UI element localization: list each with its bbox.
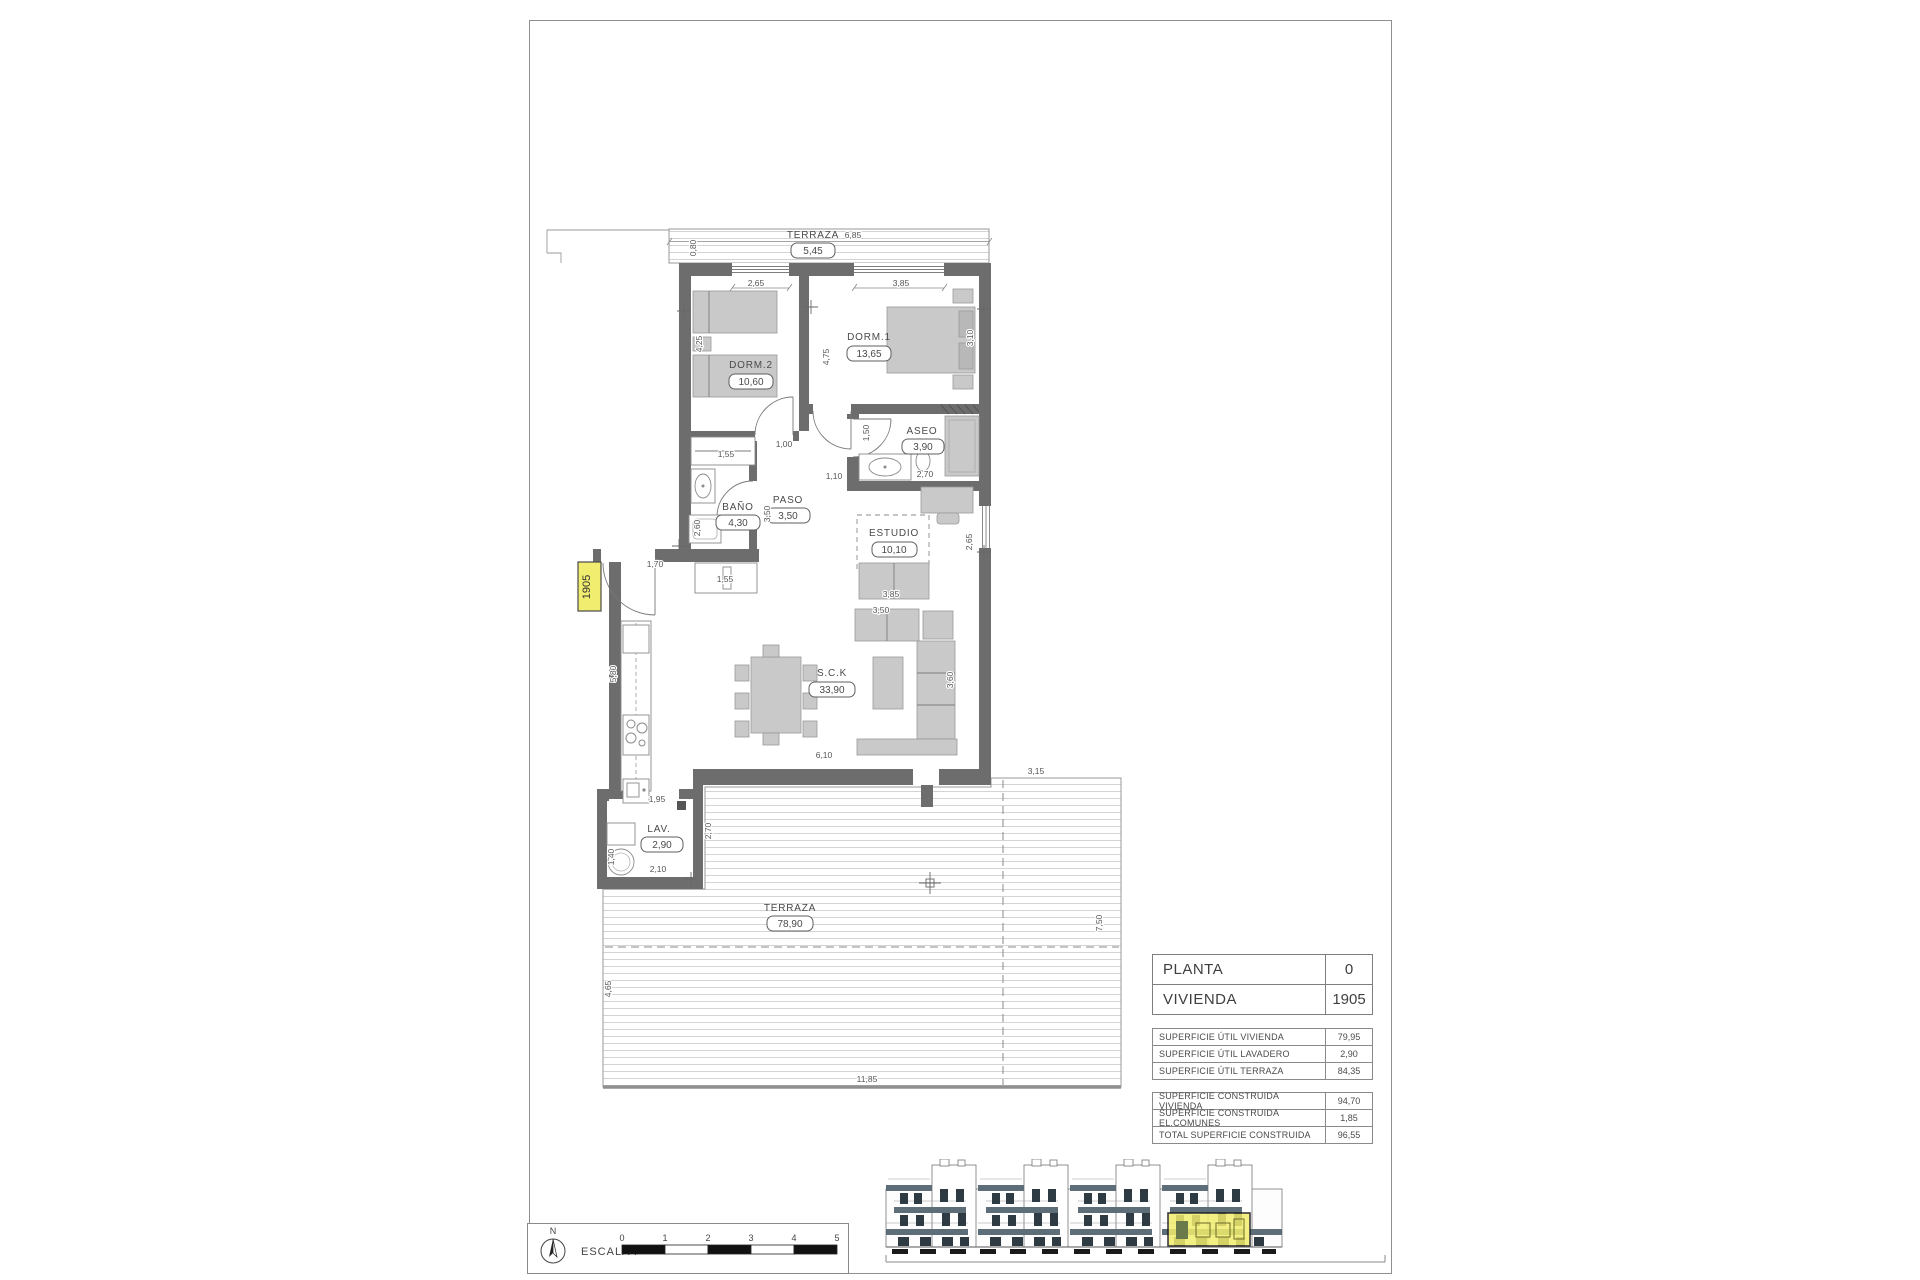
table-row: SUPERFICIE ÚTIL LAVADERO 2,90 <box>1153 1045 1372 1062</box>
area-value: 96,55 <box>1325 1127 1372 1143</box>
svg-text:1,10: 1,10 <box>826 471 843 481</box>
svg-text:DORM.2: DORM.2 <box>729 360 773 371</box>
area-value: 94,70 <box>1325 1093 1372 1109</box>
svg-text:4: 4 <box>791 1233 796 1243</box>
svg-text:4,65: 4,65 <box>603 980 613 997</box>
svg-text:0,80: 0,80 <box>688 239 698 256</box>
table-row: TOTAL SUPERFICIE CONSTRUIDA 96,55 <box>1153 1126 1372 1143</box>
area-label: TOTAL SUPERFICIE CONSTRUIDA <box>1153 1130 1325 1140</box>
info-value: 0 <box>1325 955 1372 984</box>
svg-text:2,70: 2,70 <box>917 469 934 479</box>
svg-text:1,70: 1,70 <box>647 559 664 569</box>
svg-text:6,10: 6,10 <box>816 750 833 760</box>
area-label: SUPERFICIE CONSTRUIDA EL.COMUNES <box>1153 1108 1325 1128</box>
svg-text:S.C.K: S.C.K <box>817 668 847 679</box>
svg-text:1,55: 1,55 <box>718 449 735 459</box>
scale-bar: N ESCALA : 0 1 2 3 4 5 <box>527 1223 849 1274</box>
kitchen-counter <box>621 621 651 803</box>
svg-text:TERRAZA: TERRAZA <box>787 230 839 241</box>
room-label-lav: LAV. 2,90 <box>641 824 683 852</box>
area-value: 1,85 <box>1325 1110 1372 1126</box>
svg-text:1,95: 1,95 <box>649 794 666 804</box>
svg-text:ESTUDIO: ESTUDIO <box>869 528 919 539</box>
room-label-paso: PASO 3,50 <box>767 495 810 523</box>
svg-text:ASEO: ASEO <box>907 426 938 437</box>
svg-text:5,80: 5,80 <box>608 665 618 682</box>
svg-text:2,10: 2,10 <box>650 864 667 874</box>
table-row: VIVIENDA 1905 <box>1153 984 1372 1014</box>
svg-text:2,65: 2,65 <box>748 278 765 288</box>
building-elevation <box>880 1159 1391 1280</box>
svg-text:4,25: 4,25 <box>694 335 704 352</box>
svg-text:3: 3 <box>748 1233 753 1243</box>
svg-text:2,60: 2,60 <box>692 519 702 536</box>
sink-icon <box>623 779 649 803</box>
table-row: SUPERFICIE CONSTRUIDA VIVIENDA 94,70 <box>1153 1093 1372 1109</box>
floor-plan: 1905 TERRAZA 5,45 DORM.2 10,60 DORM.1 13 <box>530 21 1391 1273</box>
table-row: SUPERFICIE CONSTRUIDA EL.COMUNES 1,85 <box>1153 1109 1372 1126</box>
svg-text:78,90: 78,90 <box>777 919 802 930</box>
table-row: SUPERFICIE ÚTIL TERRAZA 84,35 <box>1153 1062 1372 1079</box>
area-label: SUPERFICIE ÚTIL LAVADERO <box>1153 1049 1325 1059</box>
svg-text:10,60: 10,60 <box>738 377 763 388</box>
svg-text:1,55: 1,55 <box>717 574 734 584</box>
svg-text:3,15: 3,15 <box>1028 766 1045 776</box>
svg-text:5,45: 5,45 <box>803 246 823 257</box>
svg-text:N: N <box>550 1226 557 1236</box>
svg-text:3,50: 3,50 <box>778 511 798 522</box>
room-label-terraza-top: TERRAZA 5,45 <box>787 230 839 258</box>
svg-text:2,65: 2,65 <box>964 533 974 550</box>
svg-text:1: 1 <box>662 1233 667 1243</box>
plan-info-table: PLANTA 0 VIVIENDA 1905 <box>1152 954 1373 1015</box>
room-label-dorm2: DORM.2 10,60 <box>729 360 773 389</box>
svg-text:2,70: 2,70 <box>703 822 713 839</box>
unit-tag-label: 1905 <box>581 575 593 599</box>
svg-text:4,75: 4,75 <box>821 348 831 365</box>
svg-text:1,00: 1,00 <box>776 439 793 449</box>
area-label: SUPERFICIE ÚTIL VIVIENDA <box>1153 1032 1325 1042</box>
svg-text:LAV.: LAV. <box>647 824 670 835</box>
furniture-dorm1 <box>887 289 975 389</box>
svg-text:BAÑO: BAÑO <box>722 500 754 513</box>
ground-dashes <box>892 1249 1276 1254</box>
info-label: VIVIENDA <box>1153 991 1325 1008</box>
svg-text:1,50: 1,50 <box>861 424 871 441</box>
svg-text:1,40: 1,40 <box>606 848 616 865</box>
useful-area-table: SUPERFICIE ÚTIL VIVIENDA 79,95 SUPERFICI… <box>1152 1028 1373 1080</box>
room-label-estudio: ESTUDIO 10,10 <box>869 528 919 557</box>
svg-text:4,30: 4,30 <box>728 518 748 529</box>
built-area-table: SUPERFICIE CONSTRUIDA VIVIENDA 94,70 SUP… <box>1152 1092 1373 1144</box>
svg-text:7,50: 7,50 <box>1094 914 1104 931</box>
unit-tag: 1905 <box>578 562 601 611</box>
svg-text:TERRAZA: TERRAZA <box>764 903 816 914</box>
table-row: SUPERFICIE ÚTIL VIVIENDA 79,95 <box>1153 1029 1372 1045</box>
svg-text:6,85: 6,85 <box>845 230 862 240</box>
svg-text:3,90: 3,90 <box>913 442 933 453</box>
svg-text:PASO: PASO <box>773 495 803 506</box>
table-row: PLANTA 0 <box>1153 955 1372 984</box>
drawing-canvas: 1905 TERRAZA 5,45 DORM.2 10,60 DORM.1 13 <box>0 0 1920 1280</box>
area-label: SUPERFICIE ÚTIL TERRAZA <box>1153 1066 1325 1076</box>
svg-text:2: 2 <box>705 1233 710 1243</box>
info-label: PLANTA <box>1153 961 1325 978</box>
svg-text:3,60: 3,60 <box>945 671 955 688</box>
terrace-main <box>603 778 1121 1087</box>
svg-text:5: 5 <box>834 1233 839 1243</box>
svg-text:0: 0 <box>619 1233 624 1243</box>
terrace-top <box>547 229 992 263</box>
svg-text:2,90: 2,90 <box>652 840 672 851</box>
area-value: 79,95 <box>1325 1029 1372 1045</box>
svg-text:10,10: 10,10 <box>881 545 906 556</box>
svg-text:3,10: 3,10 <box>965 329 975 346</box>
hob-icon <box>623 715 649 755</box>
highlighted-unit <box>1168 1213 1250 1246</box>
room-label-dorm1: DORM.1 13,65 <box>847 332 891 361</box>
info-value: 1905 <box>1325 985 1372 1014</box>
svg-text:DORM.1: DORM.1 <box>847 332 891 343</box>
area-value: 84,35 <box>1325 1063 1372 1079</box>
svg-text:3,85: 3,85 <box>893 278 910 288</box>
scale-bar-segments <box>622 1245 837 1254</box>
svg-text:13,65: 13,65 <box>856 349 881 360</box>
room-label-aseo: ASEO 3,90 <box>902 426 944 454</box>
room-label-terraza-main: TERRAZA 78,90 <box>764 903 816 931</box>
door-arc-icon <box>755 397 793 435</box>
svg-text:33,90: 33,90 <box>819 685 844 696</box>
area-value: 2,90 <box>1325 1046 1372 1062</box>
svg-text:3,50: 3,50 <box>762 505 772 522</box>
door-arc-icon <box>813 411 851 449</box>
room-label-bano: BAÑO 4,30 <box>716 500 760 530</box>
sheet-border: 1905 TERRAZA 5,45 DORM.2 10,60 DORM.1 13 <box>529 20 1392 1274</box>
svg-text:11,85: 11,85 <box>857 1074 878 1084</box>
svg-text:3,85: 3,85 <box>883 589 900 599</box>
svg-text:3,50: 3,50 <box>873 605 890 615</box>
